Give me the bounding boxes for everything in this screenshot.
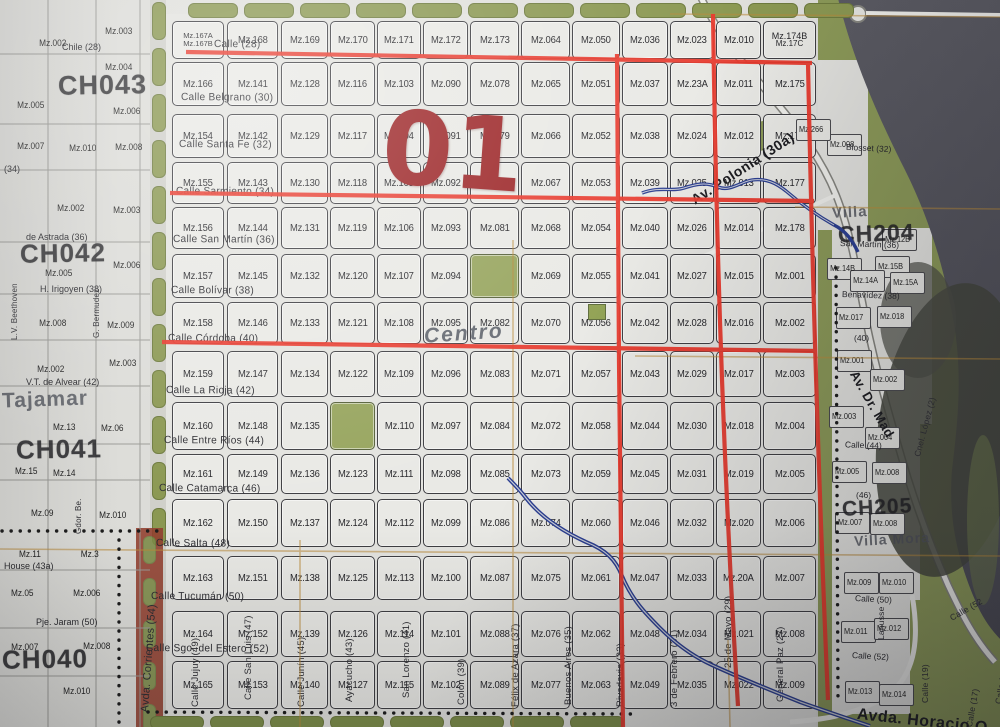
red-line-v2 [713, 14, 738, 706]
red-line-v3 [808, 63, 828, 700]
map-photo: Mz.167AMz.167BMz.168Mz.169Mz.170Mz.171Mz… [0, 0, 1000, 727]
district-number: 01 [379, 97, 528, 209]
dotted-boundaries [2, 268, 838, 727]
red-line-h1 [186, 52, 812, 63]
river-stream-south [508, 478, 870, 726]
river-stream-north [642, 180, 858, 252]
red-line-v1 [617, 54, 623, 727]
